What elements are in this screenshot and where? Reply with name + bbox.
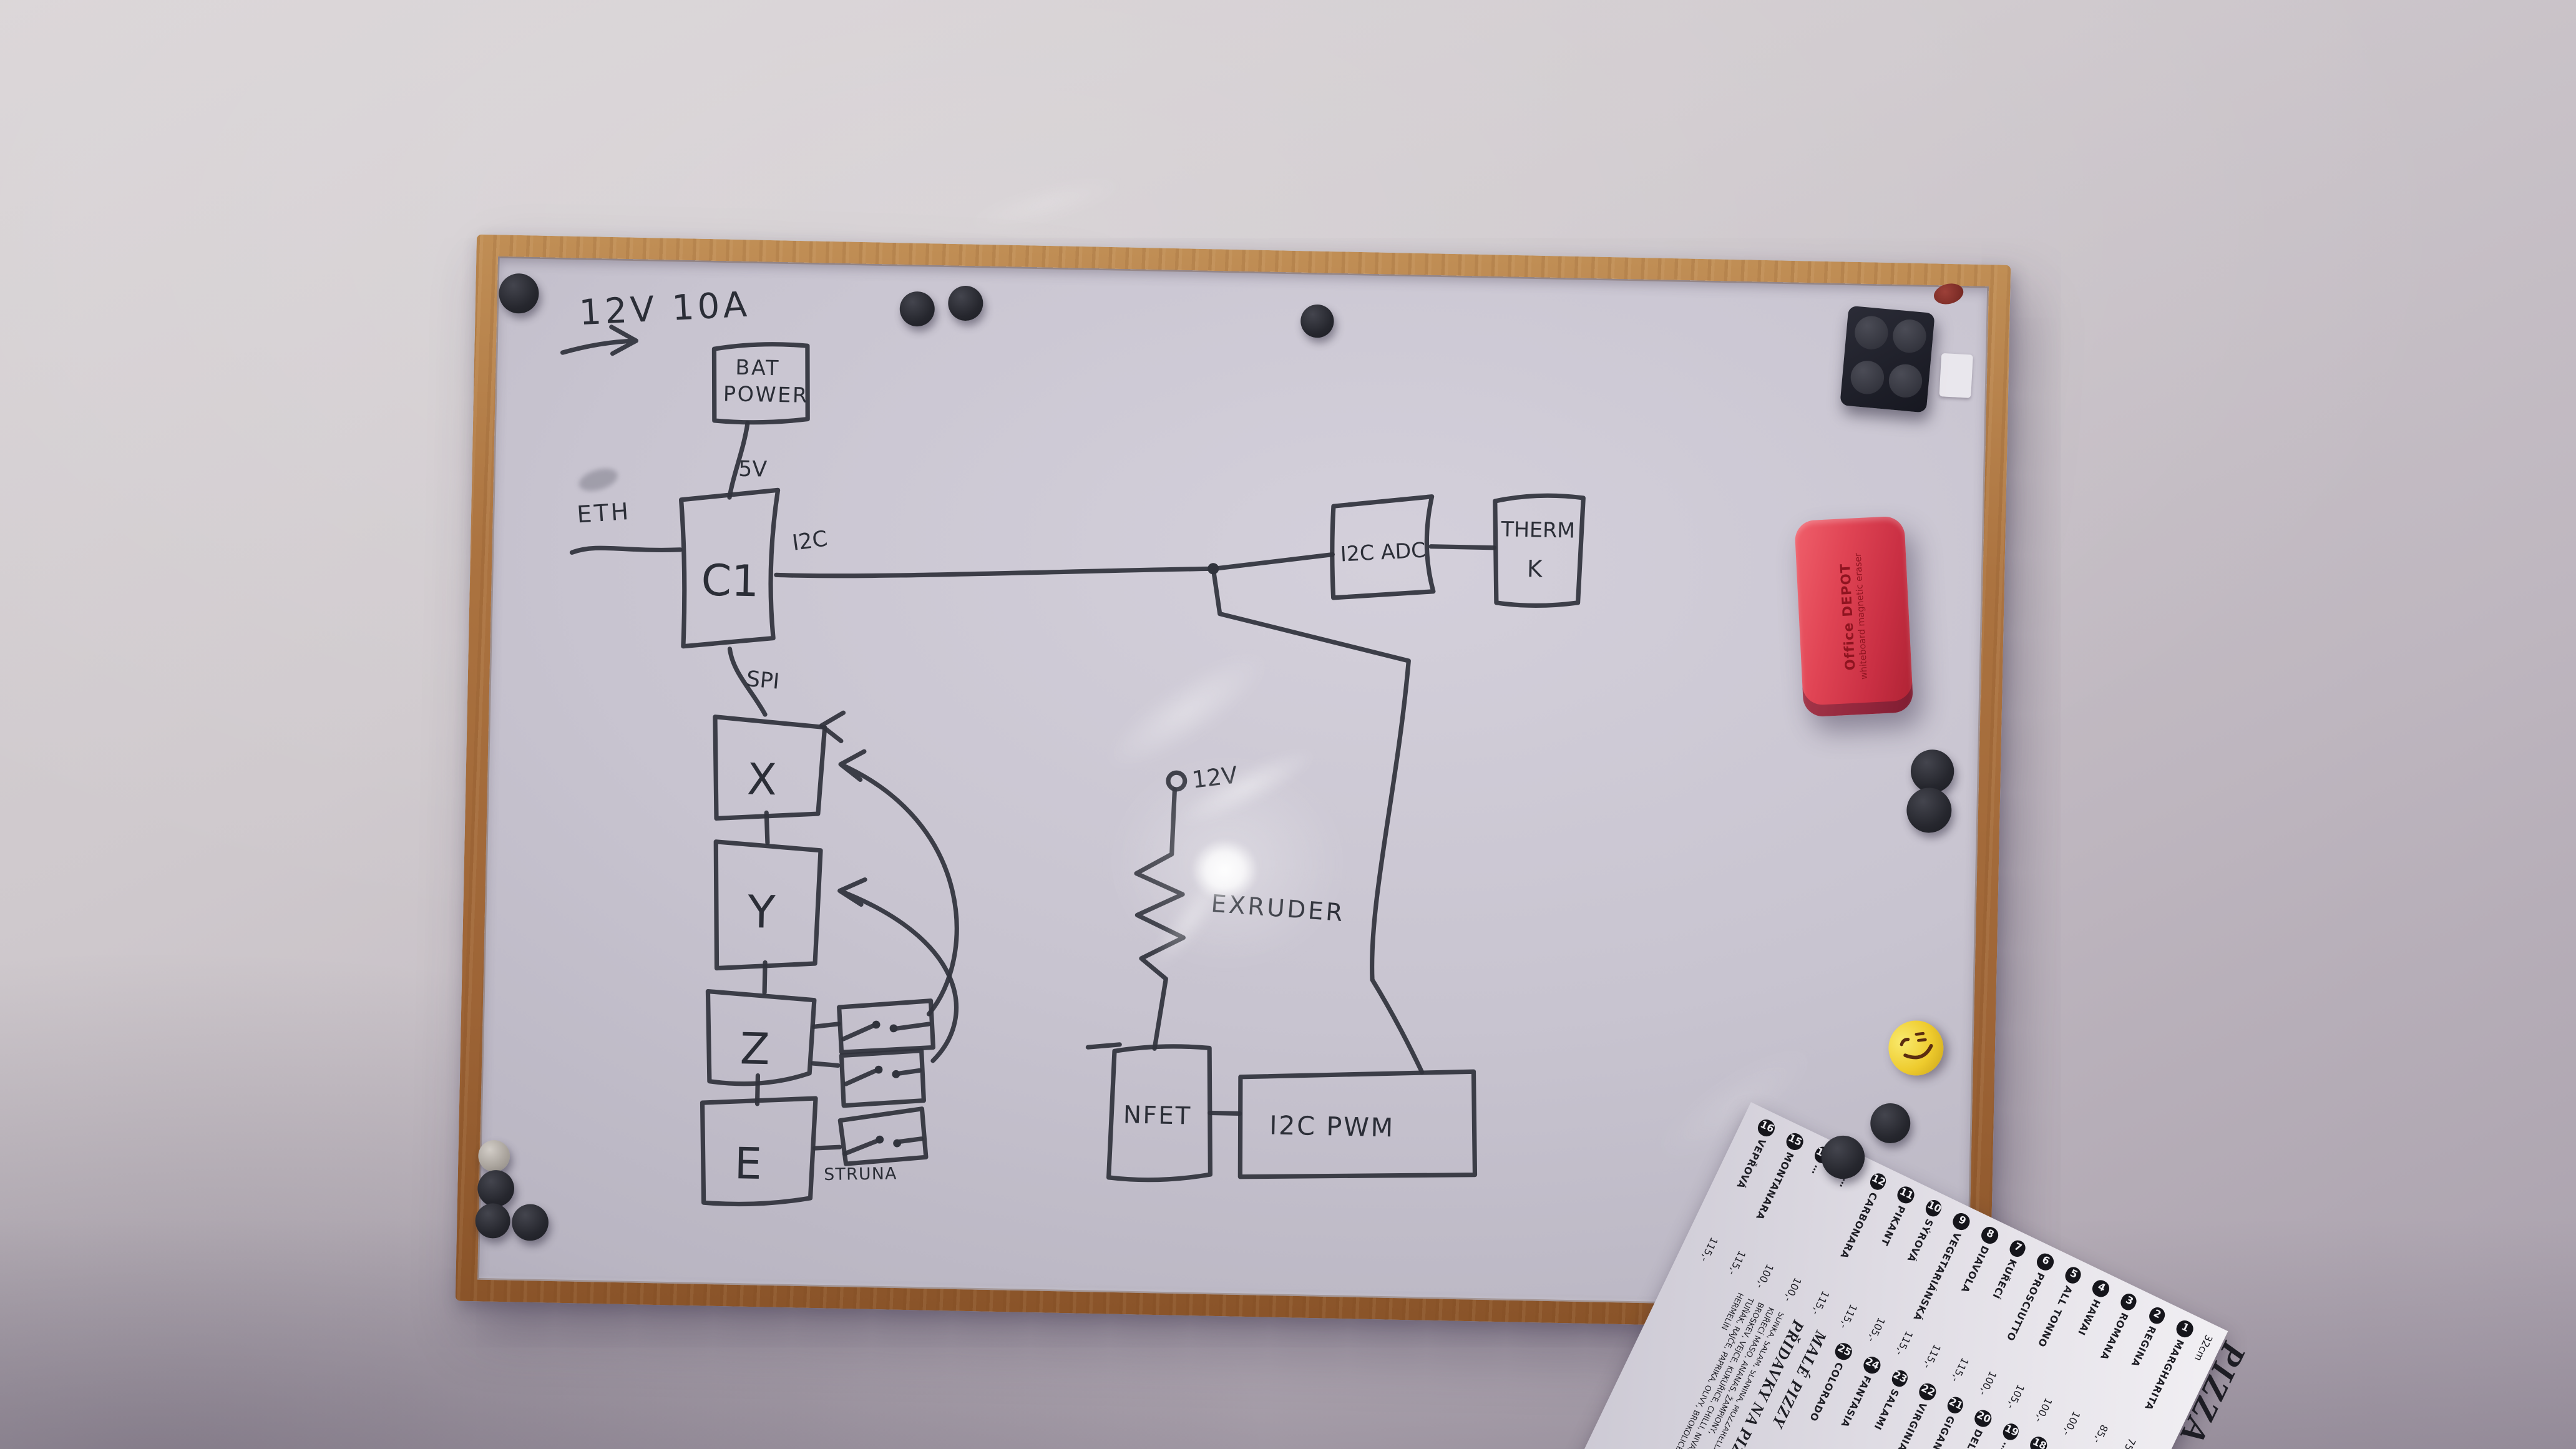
menu-item-price: 115,- (1837, 1301, 1859, 1329)
menu-item-price: 100,- (1976, 1368, 1998, 1396)
menu-item-number: 15 (1784, 1131, 1805, 1152)
whiteboard-layer: 12V 10A BAT POWER 5V C1 ETH I2C (0, 0, 2576, 1449)
eth-label: ETH (576, 497, 632, 529)
magnet (1850, 359, 1886, 395)
z-axis-box: Z (706, 992, 814, 1085)
menu-item-number: 5 (2063, 1264, 2084, 1286)
therm-k-box: THERM K (1493, 494, 1583, 607)
therm-label-2: K (1527, 555, 1544, 583)
extruder-heater: 12V EXRUDER (1133, 759, 1349, 1052)
menu-item-number: 23 (1889, 1367, 1910, 1388)
e-filament-switch: STRUNA (814, 1106, 927, 1186)
bat-power-label-2: POWER (723, 381, 809, 407)
menu-item-price: 100,- (2060, 1408, 2082, 1437)
menu-item-number: 16 (1756, 1117, 1777, 1138)
v12-label: 12V (1191, 761, 1239, 793)
z-endstop-switches (812, 998, 934, 1107)
menu-item-number: 11 (1896, 1184, 1917, 1205)
nfet-label: NFET (1123, 1101, 1192, 1130)
menu-item-price: 100,- (1754, 1261, 1775, 1289)
photo-stage: 12V 10A BAT POWER 5V C1 ETH I2C (0, 0, 2576, 1449)
i2c-pwm-box: I2C PWM (1239, 1067, 1477, 1182)
menu-item-number: 2 (2147, 1304, 2168, 1325)
magnet (1853, 315, 1890, 351)
wire-eth (572, 547, 680, 555)
spi-label: SPI (745, 666, 781, 695)
menu-item-number: 10 (1923, 1198, 1944, 1219)
menu-item-price: 100,- (1782, 1274, 1803, 1302)
supply-annotation: 12V 10A (563, 281, 753, 356)
y-axis-label: Y (747, 885, 777, 939)
i2c-pwm-label: I2C PWM (1269, 1110, 1395, 1143)
menu-item-number: 7 (2007, 1237, 2028, 1259)
x-axis-box: X (713, 717, 825, 821)
menu-item-price: 115,- (1893, 1328, 1915, 1356)
wire-adc-therm (1431, 547, 1494, 548)
bat-power-label-1: BAT (735, 355, 780, 380)
supply-label: 12V 10A (578, 285, 751, 334)
menu-item-number: 24 (1861, 1354, 1883, 1375)
menu-item-number: 19 (2001, 1421, 2022, 1442)
menu-item-number: 12 (1868, 1171, 1889, 1192)
menu-item-number: 21 (1945, 1394, 1966, 1415)
wire-y-z (764, 962, 765, 992)
therm-label-1: THERM (1500, 517, 1575, 542)
menu-item-number: 3 (2119, 1291, 2140, 1312)
menu-item-number: 20 (1973, 1408, 1994, 1429)
wire-nfet-pwm (1210, 1113, 1240, 1113)
menu-item-price: 105,- (1865, 1315, 1887, 1343)
i2c-adc-label: I2C ADC (1340, 538, 1426, 567)
magnet (1888, 362, 1924, 398)
menu-item-number: 1 (2174, 1318, 2195, 1339)
tape-piece (1939, 353, 1973, 398)
magnet-tray (1840, 306, 1934, 413)
eraser-label: Office DEPOT whiteboard magnetic eraser (1836, 523, 1871, 710)
menu-item-number: 9 (1951, 1211, 1973, 1232)
menu-item-price: 115,- (1949, 1355, 1971, 1383)
nfet-box: NFET (1085, 1044, 1212, 1181)
endstop-arrow-to-x (816, 712, 961, 1014)
menu-item-price: 115,- (1698, 1234, 1720, 1262)
magnet (1891, 318, 1928, 354)
i2c-label: I2C (791, 526, 829, 555)
diagram-svg: 12V 10A BAT POWER 5V C1 ETH I2C (0, 0, 2576, 1449)
struna-label: STRUNA (824, 1164, 897, 1184)
menu-item-price: 75,- (2119, 1435, 2137, 1449)
x-axis-label: X (746, 754, 777, 805)
menu-item-number: 18 (2029, 1435, 2050, 1449)
menu-item-number: 22 (1917, 1381, 1938, 1402)
z-axis-label: Z (739, 1024, 770, 1075)
i2c-adc-box: I2C ADC (1331, 495, 1435, 600)
menu-item-price: 105,- (2004, 1382, 2026, 1410)
v5-label: 5V (738, 457, 768, 482)
wire-node-pwm (1204, 573, 1432, 1072)
y-axis-box: Y (713, 842, 821, 970)
menu-item-price: 85,- (2091, 1422, 2109, 1444)
menu-item-number: 25 (1833, 1341, 1855, 1362)
e-axis-box: E (700, 1096, 816, 1206)
menu-item-number: 8 (1979, 1224, 2001, 1246)
whiteboard-eraser: Office DEPOT whiteboard magnetic eraser (1794, 515, 1913, 717)
menu-item-price: 115,- (1809, 1288, 1831, 1316)
wire-x-y (766, 812, 768, 842)
c1-label: C1 (701, 556, 759, 607)
e-axis-label: E (734, 1139, 762, 1189)
menu-item-number: 4 (2091, 1278, 2112, 1299)
menu-item-price: 115,- (1726, 1247, 1748, 1276)
heater-zigzag (1133, 789, 1186, 1049)
menu-item-number: 6 (2035, 1251, 2056, 1272)
wire-i2c-bus (776, 560, 1212, 583)
menu-item-price: 115,- (1921, 1342, 1943, 1370)
menu-item-price: 100,- (2032, 1395, 2054, 1423)
extruder-label: EXRUDER (1210, 890, 1346, 927)
bat-power-box: BAT POWER (713, 343, 809, 424)
c1-box: C1 (678, 488, 778, 648)
wire-node-adc (1214, 552, 1333, 571)
